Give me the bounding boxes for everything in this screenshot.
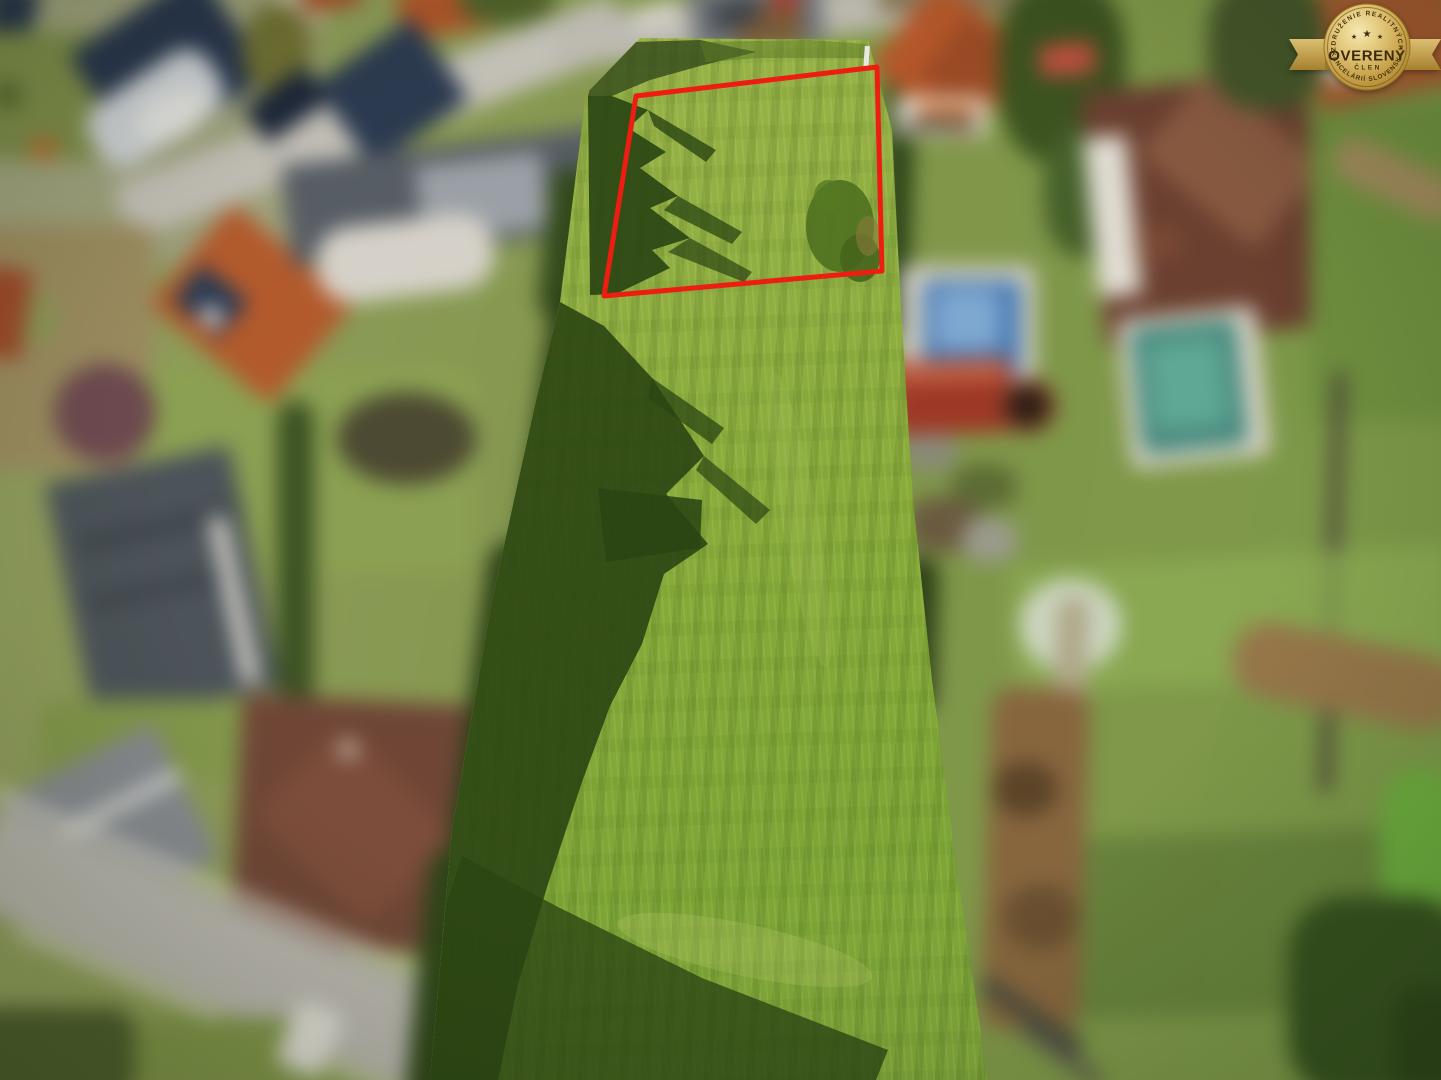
- pool-water: [1146, 338, 1228, 431]
- badge-star-middle: ★: [1363, 29, 1372, 40]
- badge-member: ČLEN: [1354, 63, 1382, 72]
- awning: [919, 105, 976, 117]
- badge-ribbon-left: [1289, 39, 1329, 70]
- bush: [814, 180, 842, 212]
- badge-star-right: ★: [1377, 33, 1383, 41]
- pool-water: [935, 290, 999, 349]
- badge-star-left: ★: [1351, 33, 1357, 41]
- garden-clutter: [962, 517, 1017, 562]
- tree-shadow: [668, 238, 752, 282]
- dry-plants: [1003, 884, 1079, 950]
- dry-plants: [993, 761, 1059, 816]
- car: [1039, 42, 1097, 77]
- mown-streak: [756, 369, 844, 671]
- garden-vessel: [1007, 386, 1048, 425]
- dormer: [1135, 226, 1181, 261]
- tree: [54, 364, 157, 462]
- aerial-photo: ZDRUŽENIE REALITNÝCH ★ ★ ★ OVERENÝ ČLEN …: [0, 0, 1441, 1080]
- hedge: [277, 401, 314, 714]
- grass-highlight: [700, 40, 870, 62]
- dry-patch: [856, 216, 880, 256]
- tree: [337, 392, 476, 484]
- windows: [904, 118, 976, 132]
- bushes: [0, 1007, 136, 1080]
- chimney: [341, 743, 356, 756]
- bush: [29, 136, 58, 161]
- verified-badge: ZDRUŽENIE REALITNÝCH ★ ★ ★ OVERENÝ ČLEN …: [1283, 0, 1441, 106]
- trees: [1392, 987, 1441, 1080]
- tree-shadow: [696, 456, 770, 524]
